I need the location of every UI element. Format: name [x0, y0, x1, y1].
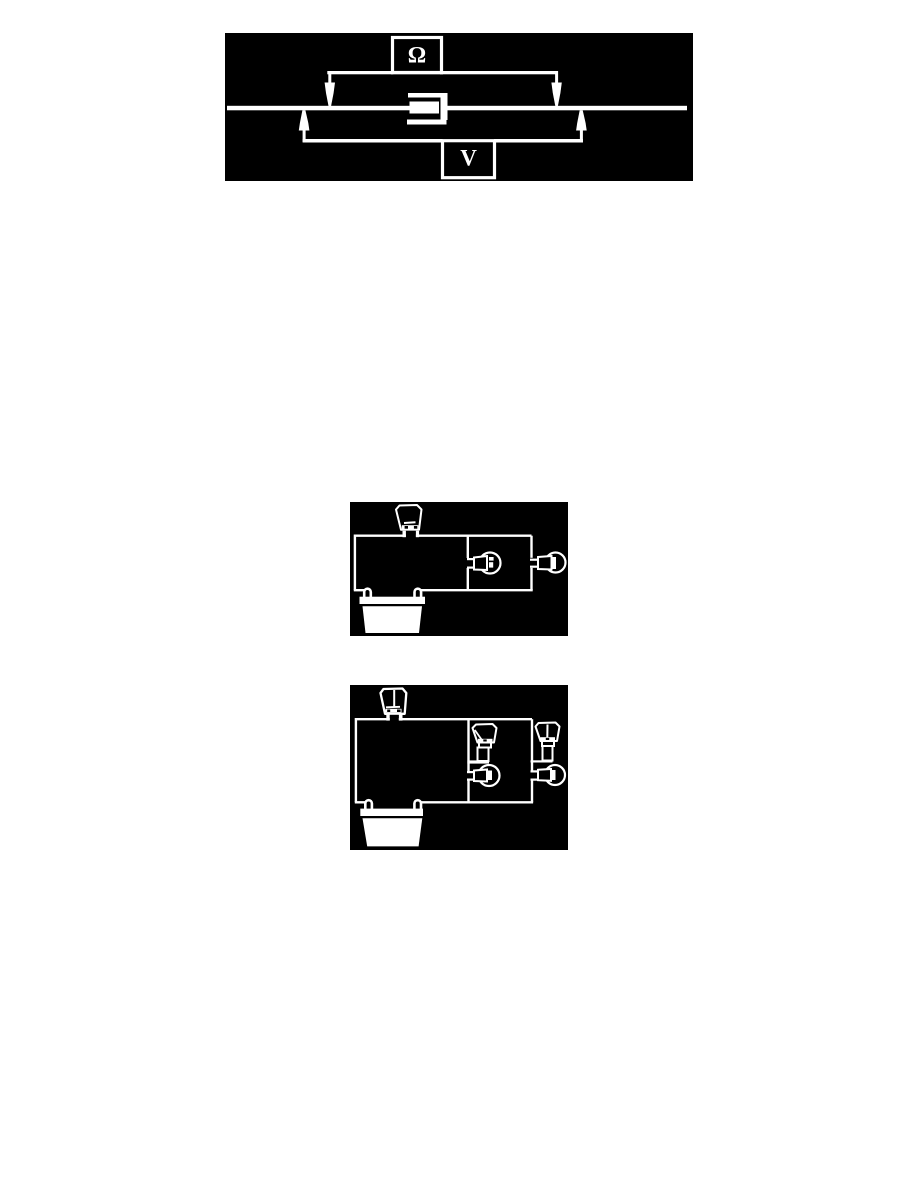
- svg-text:V: V: [460, 146, 477, 171]
- svg-text:Ω: Ω: [408, 43, 426, 68]
